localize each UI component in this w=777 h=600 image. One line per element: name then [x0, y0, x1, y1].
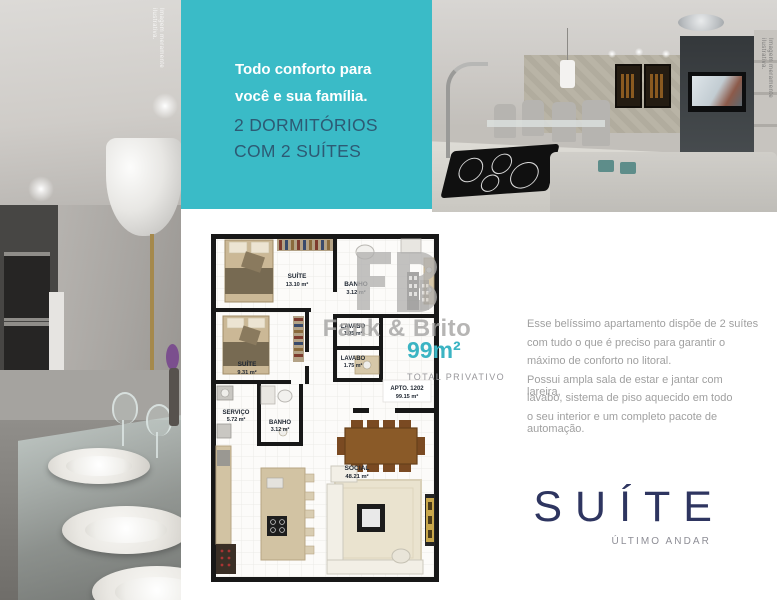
tv-rack — [425, 494, 435, 546]
panel-subheadline: 2 DORMITÓRIOS COM 2 SUÍTES — [234, 112, 414, 164]
area-highlight: 99m² TOTAL PRIVATIVO — [407, 337, 527, 382]
wardrobe-suite-1 — [277, 239, 333, 251]
brochure-page: Imagem meramente ilustrativa. Todo confo… — [0, 0, 777, 600]
wardrobe-suite-2 — [293, 316, 304, 362]
room-area-servico: 5.72 m² — [227, 417, 246, 423]
recessed-light — [662, 50, 670, 58]
wall-oven — [4, 252, 50, 321]
ceiling-spotlight — [28, 176, 54, 202]
description-line: com tudo o que é preciso para garantir o — [527, 337, 759, 356]
room-area-social: 48.21 m² — [345, 473, 368, 480]
kitchen-island — [261, 468, 314, 560]
total-area-value: 99m² — [407, 337, 527, 364]
footer-title: SUÍTE — [530, 483, 725, 532]
unit-label: APTO. 1202 — [390, 386, 424, 392]
footer-subtitle: ÚLTIMO ANDAR — [530, 536, 711, 547]
tv-screen — [692, 76, 742, 106]
recessed-light — [635, 48, 643, 56]
wine-glass-stem — [122, 420, 124, 446]
description-line: lavabo, sistema de piso aquecido em todo — [527, 392, 759, 411]
room-label-banho-2: BANHO — [269, 420, 291, 426]
flower — [166, 344, 179, 370]
room-area-lavabo-2: 1.75 m² — [344, 363, 363, 369]
photo-disclaimer-right: Imagem meramente ilustrativa. — [759, 38, 773, 102]
lamp-pole — [150, 234, 154, 374]
room-label-banho-1: BANHO — [344, 281, 367, 288]
faucet — [446, 62, 488, 158]
dining-chair — [522, 100, 544, 136]
description-line: o seu interior e um completo pacote de a… — [527, 411, 759, 430]
bed-suite-1 — [225, 240, 273, 302]
wall-art — [644, 64, 671, 108]
room-area-banho-1: 3.12 m² — [346, 289, 365, 296]
room-area-suite-1: 13.10 m² — [286, 281, 309, 288]
photo-disclaimer-left: Imagem meramente ilustrativa. — [150, 8, 164, 78]
floor-plan: SUÍTE 13.10 m² BANHO 3.12 m² LAVABO 1.05… — [205, 228, 445, 588]
room-label-servico: SERVIÇO — [223, 410, 250, 416]
room-area-suite-2: 9.31 m² — [237, 369, 256, 376]
interior-photo-left: Imagem meramente ilustrativa. — [0, 0, 181, 600]
panel-headline: Todo conforto para você e sua família. — [235, 56, 403, 110]
wall-art — [615, 64, 642, 108]
room-label-suite-2: SUÍTE — [238, 359, 258, 368]
wine-glass — [112, 392, 138, 424]
recessed-light — [608, 50, 616, 58]
dining-table — [487, 120, 605, 127]
sofa-back — [550, 152, 777, 212]
description-line: Esse belíssimo apartamento dispõe de 2 s… — [527, 318, 759, 337]
room-label-lavabo-2: LAVABO — [341, 356, 366, 362]
footer-block: SUÍTE ÚLTIMO ANDAR — [530, 483, 712, 547]
teal-panel: Todo conforto para você e sua família. 2… — [181, 0, 432, 209]
ceiling-lamp — [678, 14, 724, 31]
living-area — [327, 466, 423, 574]
pendant-lamp — [560, 60, 575, 88]
apartment-description: Esse belíssimo apartamento dispõe de 2 s… — [527, 318, 759, 430]
room-label-suite-1: SUÍTE — [288, 271, 308, 280]
plate — [62, 506, 181, 554]
pendant-cord — [567, 28, 568, 61]
ceiling-spotlight — [152, 93, 178, 119]
wine-glass-stem — [156, 432, 158, 458]
room-label-lavabo-1: LAVABO — [341, 324, 366, 330]
kitchen-photo: Imagem meramente ilustrativa. — [432, 0, 777, 212]
description-line: máximo de conforto no litoral. — [527, 355, 759, 374]
room-area-banho-2: 3.12 m² — [271, 427, 290, 433]
photo-wall — [58, 205, 181, 375]
description-line: Possui ampla sala de estar e jantar com … — [527, 374, 759, 393]
total-area-label: TOTAL PRIVATIVO — [407, 372, 527, 382]
room-area-lavabo-1: 1.05 m² — [344, 331, 363, 337]
plate — [48, 448, 150, 484]
unit-area: 99.15 m² — [396, 393, 419, 400]
vase — [169, 368, 179, 426]
room-label-social: SOCIAL — [345, 465, 370, 472]
